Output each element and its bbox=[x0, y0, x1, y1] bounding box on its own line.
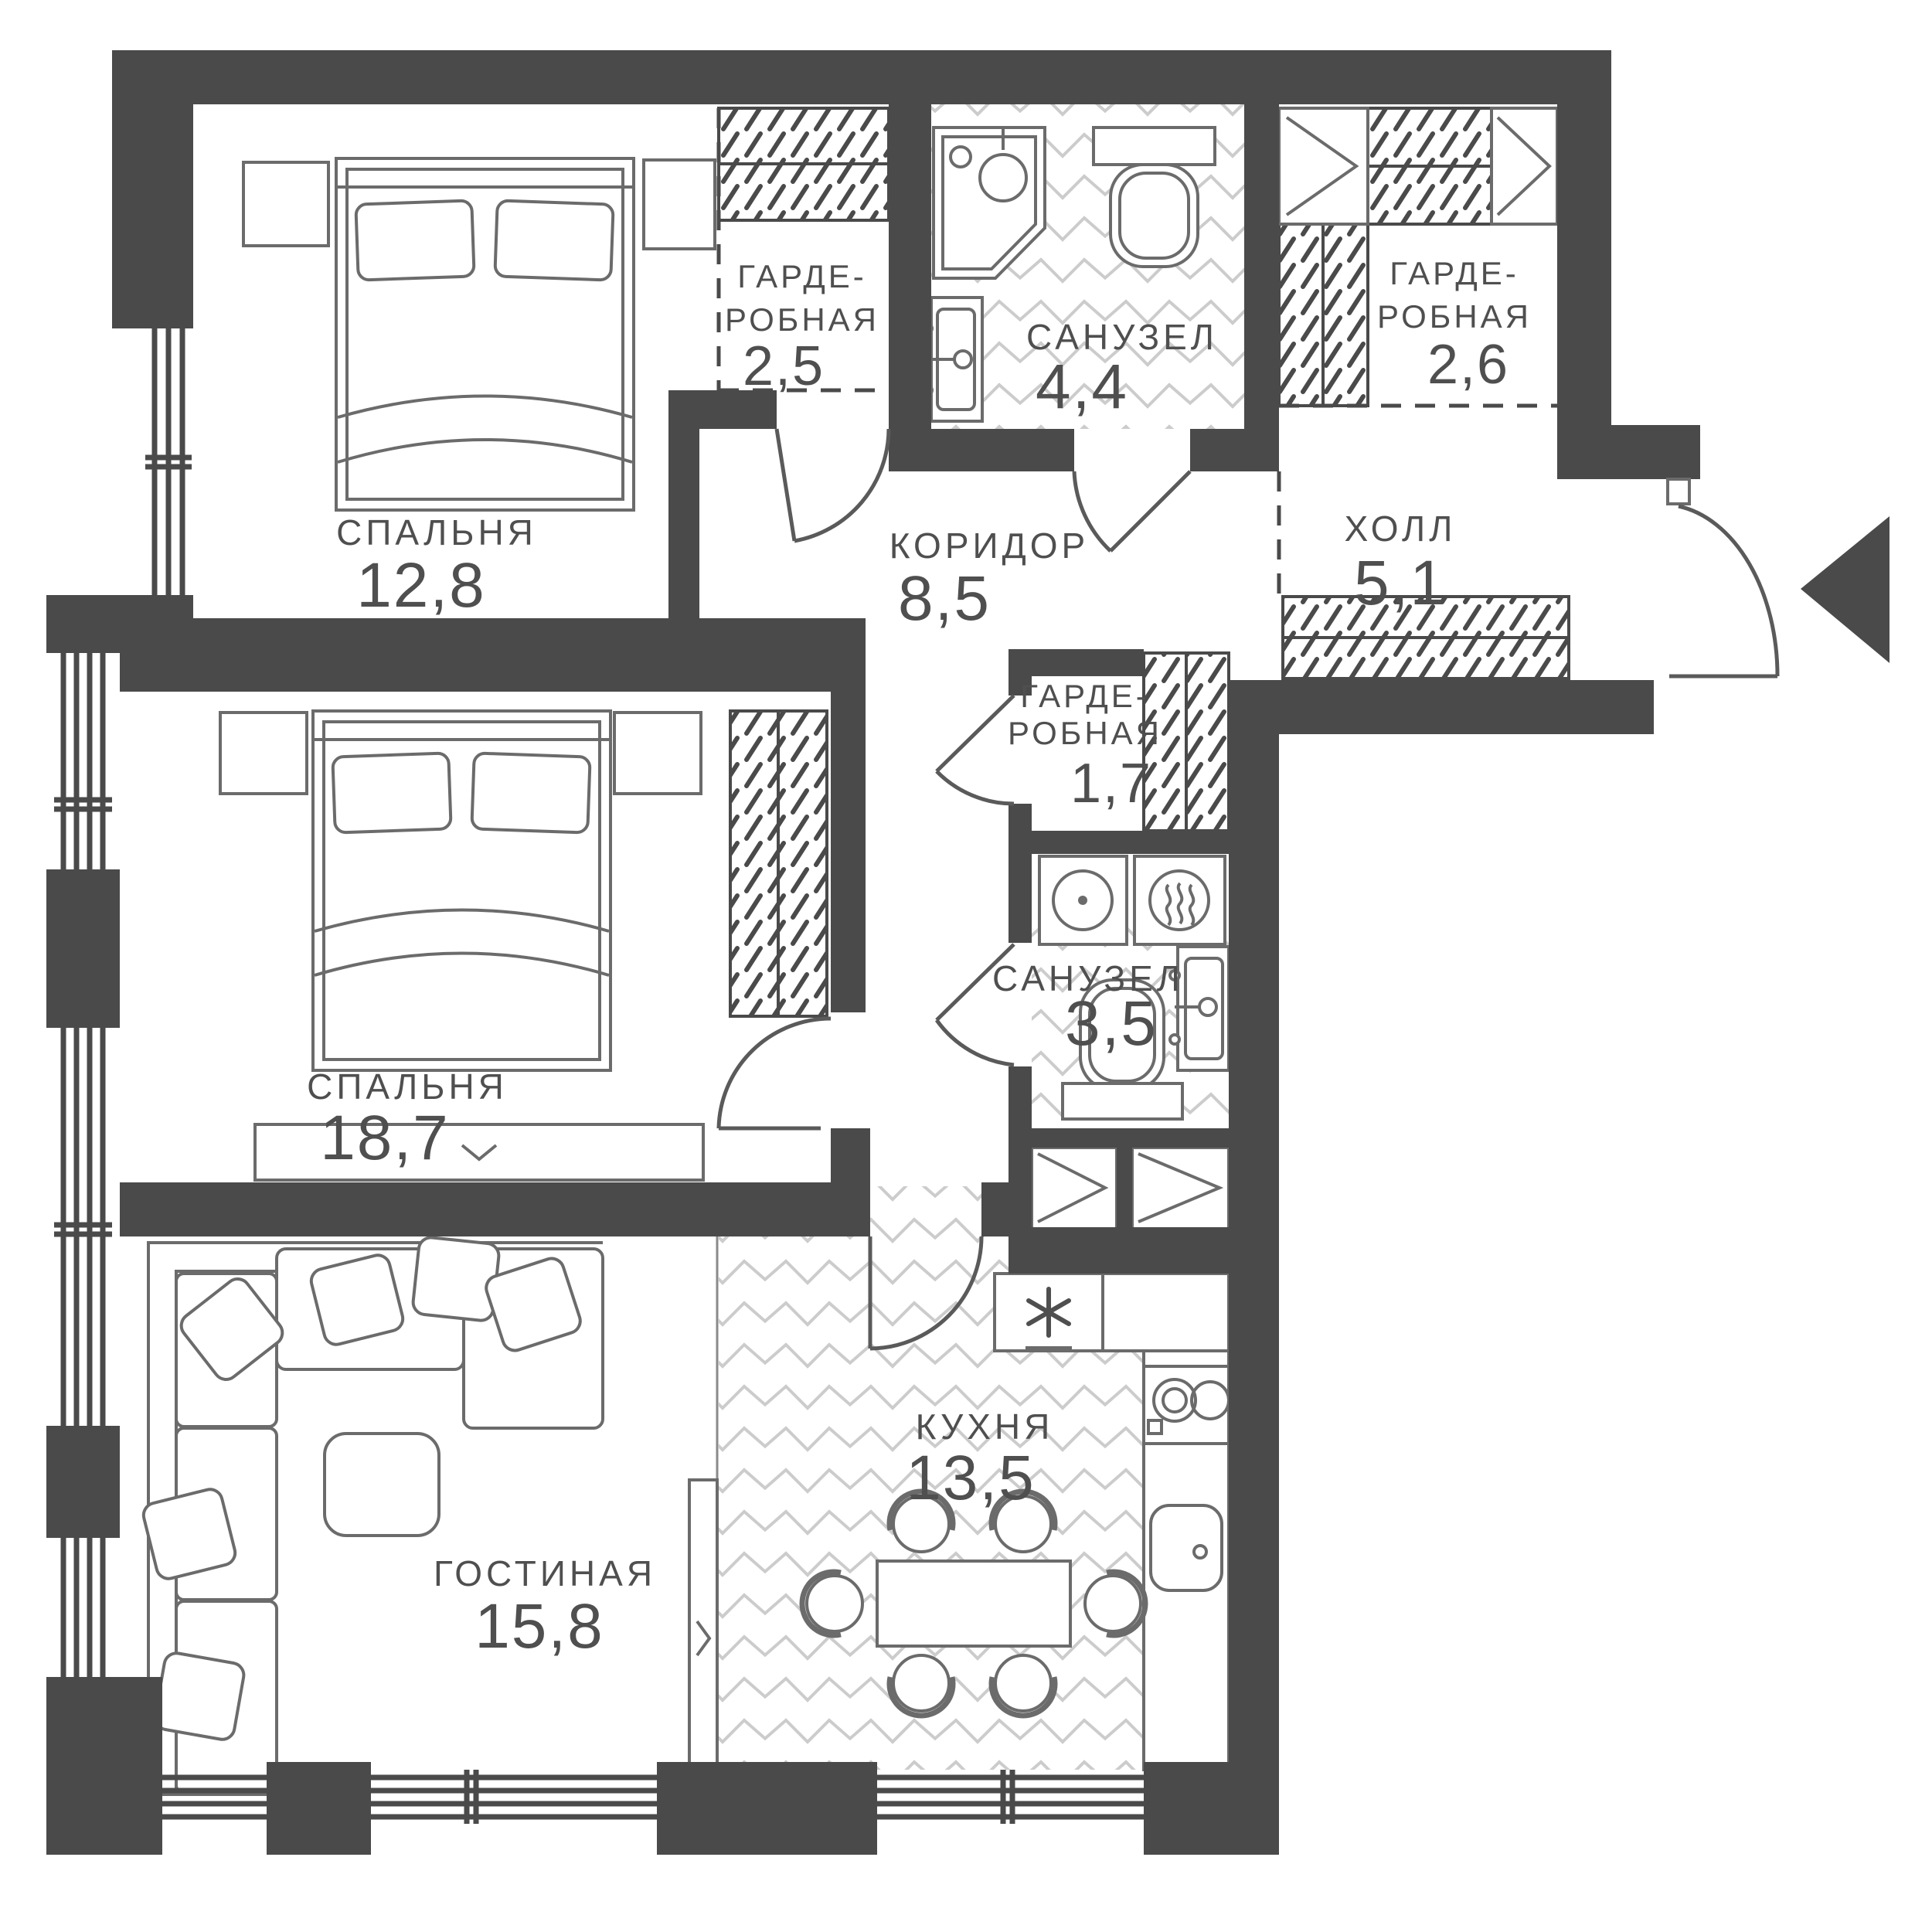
room-area: 2,6 bbox=[1427, 334, 1509, 396]
pillow-icon bbox=[412, 1236, 500, 1321]
room-area: 8,5 bbox=[898, 563, 991, 634]
room-label: СПАЛЬНЯ bbox=[336, 512, 537, 553]
window bbox=[63, 1538, 103, 1677]
room-label: ГАРДЕ- bbox=[1020, 678, 1150, 714]
room-label: КУХНЯ bbox=[916, 1406, 1054, 1447]
svg-text:ГАРДЕ-: ГАРДЕ- bbox=[1020, 678, 1150, 714]
room-wardrobe-2-6: ГАРДЕ- РОБНАЯ 2,6 bbox=[1377, 255, 1532, 396]
room-area: 18,7 bbox=[320, 1103, 450, 1173]
double-bed-icon bbox=[336, 158, 634, 510]
room-hall: ХОЛЛ 5,1 bbox=[1345, 509, 1457, 618]
room-label: РОБНАЯ bbox=[1008, 715, 1162, 751]
room-label: КОРИДОР bbox=[889, 526, 1089, 566]
nightstand-icon bbox=[644, 160, 715, 249]
dining-table-icon bbox=[877, 1561, 1070, 1646]
shaft-door-icon bbox=[1279, 108, 1368, 224]
chair-icon bbox=[889, 1655, 953, 1716]
window bbox=[145, 328, 192, 595]
wardrobe-rail-icon bbox=[719, 108, 889, 220]
nightstand-icon bbox=[243, 162, 328, 246]
room-label: ГОСТИНАЯ bbox=[434, 1553, 656, 1594]
cooktop-icon bbox=[1144, 1366, 1229, 1444]
svg-text:ГАРДЕ-: ГАРДЕ- bbox=[1389, 255, 1519, 291]
sliding-door-icon[interactable] bbox=[689, 1236, 717, 1797]
svg-text:РОБНАЯ: РОБНАЯ bbox=[1377, 298, 1532, 335]
room-area: 1,7 bbox=[1070, 753, 1152, 815]
room-bathroom-small: САНУЗЕЛ 3,5 bbox=[992, 958, 1184, 1059]
room-area: 15,8 bbox=[474, 1591, 604, 1662]
window bbox=[54, 653, 112, 869]
living-furniture bbox=[141, 1236, 717, 1797]
bedroom2-furniture bbox=[220, 711, 703, 1180]
room-corridor: КОРИДОР 8,5 bbox=[889, 526, 1089, 634]
toilet-icon bbox=[1094, 128, 1215, 267]
pillow-icon bbox=[153, 1651, 246, 1742]
wardrobe-rail-icon bbox=[1279, 224, 1368, 406]
door-arc[interactable] bbox=[1074, 471, 1190, 551]
room-area: 5,1 bbox=[1354, 548, 1447, 618]
chair-icon bbox=[1085, 1572, 1145, 1635]
dryer-icon bbox=[1134, 856, 1225, 944]
svg-text:ГАРДЕ-: ГАРДЕ- bbox=[737, 258, 867, 294]
chair-icon bbox=[802, 1572, 862, 1635]
shaft-door-icon bbox=[1492, 108, 1557, 224]
room-wardrobe-1-7: ГАРДЕ- РОБНАЯ 1,7 bbox=[1008, 678, 1162, 815]
nightstand-icon bbox=[220, 713, 307, 794]
room-label: СПАЛЬНЯ bbox=[307, 1066, 508, 1107]
window bbox=[54, 1028, 112, 1426]
nightstand-icon bbox=[614, 713, 701, 794]
svg-text:РОБНАЯ: РОБНАЯ bbox=[725, 301, 879, 338]
floor-plan: СПАЛЬНЯ 12,8 ГАРДЕ- РОБНАЯ 2,5 САНУЗЕЛ 4… bbox=[0, 0, 1932, 1932]
room-label: ГАРДЕ- bbox=[1389, 255, 1519, 291]
door-arc[interactable] bbox=[777, 429, 889, 541]
bedroom1-furniture bbox=[243, 158, 715, 510]
door-arc[interactable] bbox=[937, 696, 1014, 804]
floor-plan-canvas: СПАЛЬНЯ 12,8 ГАРДЕ- РОБНАЯ 2,5 САНУЗЕЛ 4… bbox=[0, 0, 1932, 1932]
kitchen-sink-icon bbox=[1151, 1505, 1222, 1590]
door-arc[interactable] bbox=[719, 1019, 831, 1128]
entrance-arrow-icon bbox=[1801, 516, 1889, 663]
room-area: 4,4 bbox=[1036, 352, 1128, 422]
room-living: ГОСТИНАЯ 15,8 bbox=[434, 1553, 656, 1662]
room-area: 12,8 bbox=[356, 550, 486, 621]
room-label: ХОЛЛ bbox=[1345, 509, 1457, 549]
fridge-icon bbox=[995, 1274, 1103, 1352]
room-area: 13,5 bbox=[906, 1443, 1036, 1513]
room-bedroom-1: СПАЛЬНЯ 12,8 bbox=[336, 512, 537, 621]
wardrobe-rail-icon bbox=[1368, 108, 1492, 224]
double-bed-icon bbox=[313, 711, 611, 1070]
room-label: РОБНАЯ bbox=[1377, 298, 1532, 335]
entrance-door-arc[interactable] bbox=[1668, 479, 1777, 676]
bedroom2-closet-rail-icon bbox=[730, 711, 827, 1016]
coffee-table-icon bbox=[325, 1434, 439, 1536]
bathroom-sink-icon bbox=[923, 298, 982, 421]
room-wardrobe-2-5: ГАРДЕ- РОБНАЯ 2,5 bbox=[725, 258, 879, 397]
room-label: ГАРДЕ- bbox=[737, 258, 867, 294]
room-area: 2,5 bbox=[743, 335, 825, 397]
washing-machine-icon bbox=[1039, 856, 1127, 944]
svg-text:РОБНАЯ: РОБНАЯ bbox=[1008, 715, 1162, 751]
room-label: РОБНАЯ bbox=[725, 301, 879, 338]
kitchen-door-floor bbox=[870, 1186, 981, 1236]
room-area: 3,5 bbox=[1065, 988, 1158, 1059]
chair-icon bbox=[992, 1655, 1055, 1716]
kitchen-counter bbox=[1103, 1274, 1229, 1351]
room-kitchen: КУХНЯ 13,5 bbox=[906, 1406, 1053, 1513]
